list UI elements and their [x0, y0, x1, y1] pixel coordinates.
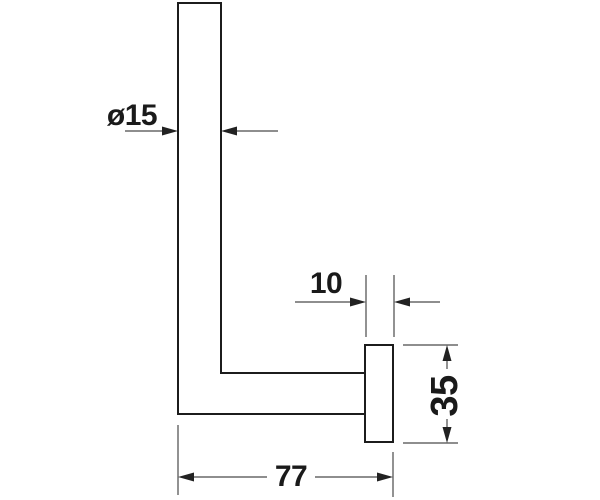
arrow-down-icon	[443, 427, 452, 443]
arrow-up-icon	[443, 345, 452, 361]
plate-depth-dimension-label: 10	[310, 267, 342, 300]
drawing-canvas: ø15 10 35	[0, 0, 600, 500]
part-outline-l-profile	[178, 3, 365, 414]
dimension-bar-diameter: ø15	[107, 99, 278, 136]
dimension-drawing-svg: ø15 10 35	[0, 0, 600, 500]
dimension-plate-depth: 10	[295, 267, 440, 337]
arrow-left-icon	[178, 473, 194, 482]
arrow-left-icon	[394, 298, 410, 307]
arrow-right-icon	[162, 127, 178, 136]
dimension-overall-depth: 77	[178, 425, 393, 497]
overall-depth-dimension-label: 77	[275, 460, 307, 493]
wall-plate-outline	[365, 345, 393, 442]
diameter-dimension-label: ø15	[107, 99, 157, 132]
plate-height-dimension-label: 35	[424, 375, 466, 417]
arrow-right-icon	[377, 473, 393, 482]
arrow-right-icon	[350, 298, 366, 307]
dimension-plate-height: 35	[403, 345, 466, 443]
arrow-left-icon	[221, 127, 237, 136]
